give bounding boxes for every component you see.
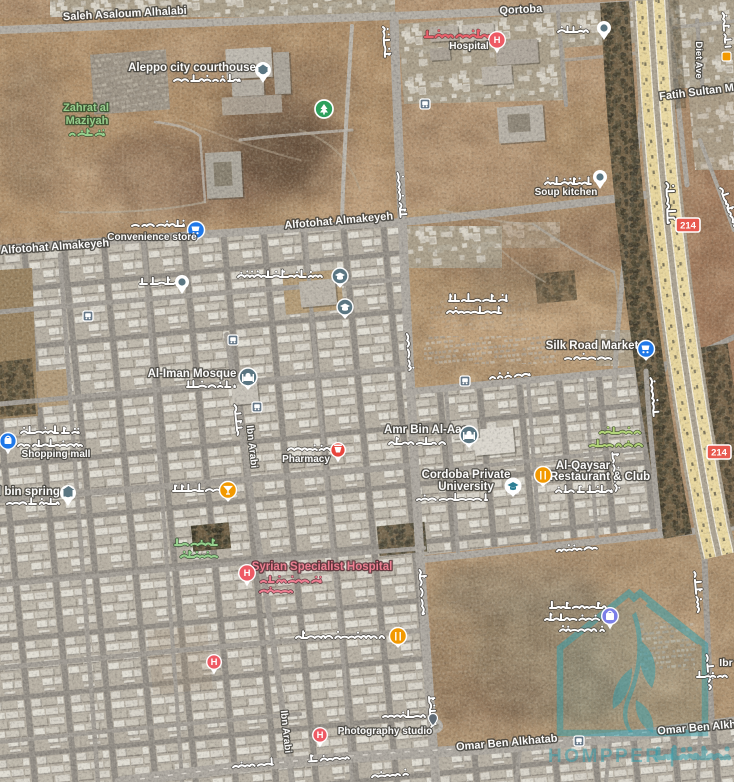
svg-text:Pharmacy: Pharmacy <box>282 454 330 465</box>
svg-text:Amr Bin Al-Aas: Amr Bin Al-Aas <box>384 424 468 436</box>
svg-text:214: 214 <box>711 448 728 459</box>
svg-text:H: H <box>211 657 218 668</box>
svg-text:Photography studio: Photography studio <box>338 726 432 737</box>
svg-text:Diet Ave: Diet Ave <box>693 41 704 78</box>
svg-text:d bin spring: d bin spring <box>0 486 60 498</box>
svg-text:Al-Iman Mosque: Al-Iman Mosque <box>148 368 237 380</box>
svg-text:Syrian Specialist Hospital: Syrian Specialist Hospital <box>252 561 393 573</box>
svg-text:Restaurant & Club: Restaurant & Club <box>550 471 650 483</box>
svg-text:Soup kitchen: Soup kitchen <box>535 187 598 198</box>
svg-text:Zahrat al: Zahrat al <box>63 102 109 114</box>
svg-text:Convenience store: Convenience store <box>107 232 197 243</box>
svg-text:Hospital: Hospital <box>449 41 489 52</box>
svg-text:H: H <box>244 568 251 579</box>
svg-text:Aleppo city courthouse: Aleppo city courthouse <box>128 62 256 74</box>
svg-text:Cordoba Private: Cordoba Private <box>422 469 511 481</box>
svg-text:H: H <box>494 35 501 46</box>
svg-text:Ibr: Ibr <box>719 657 732 669</box>
svg-text:Silk Road Market: Silk Road Market <box>546 340 639 352</box>
svg-text:H: H <box>317 730 324 741</box>
svg-text:University: University <box>438 481 494 493</box>
svg-text:214: 214 <box>680 221 697 232</box>
svg-text:Shopping mall: Shopping mall <box>22 449 91 460</box>
svg-text:Qortoba: Qortoba <box>499 3 543 17</box>
svg-text:Maziyah: Maziyah <box>66 115 109 127</box>
